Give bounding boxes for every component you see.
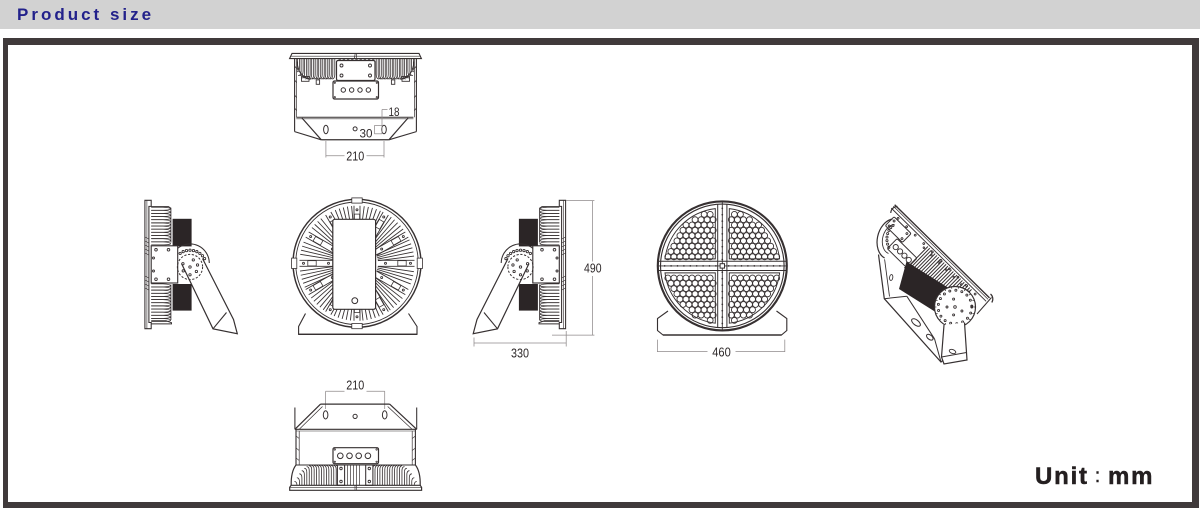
svg-text:30: 30 bbox=[360, 126, 373, 140]
svg-text:210: 210 bbox=[346, 377, 364, 392]
svg-text:330: 330 bbox=[511, 345, 529, 360]
svg-text:490: 490 bbox=[584, 260, 602, 275]
svg-text:18: 18 bbox=[389, 105, 400, 119]
svg-text:460: 460 bbox=[712, 344, 731, 359]
svg-text:210: 210 bbox=[346, 149, 364, 164]
